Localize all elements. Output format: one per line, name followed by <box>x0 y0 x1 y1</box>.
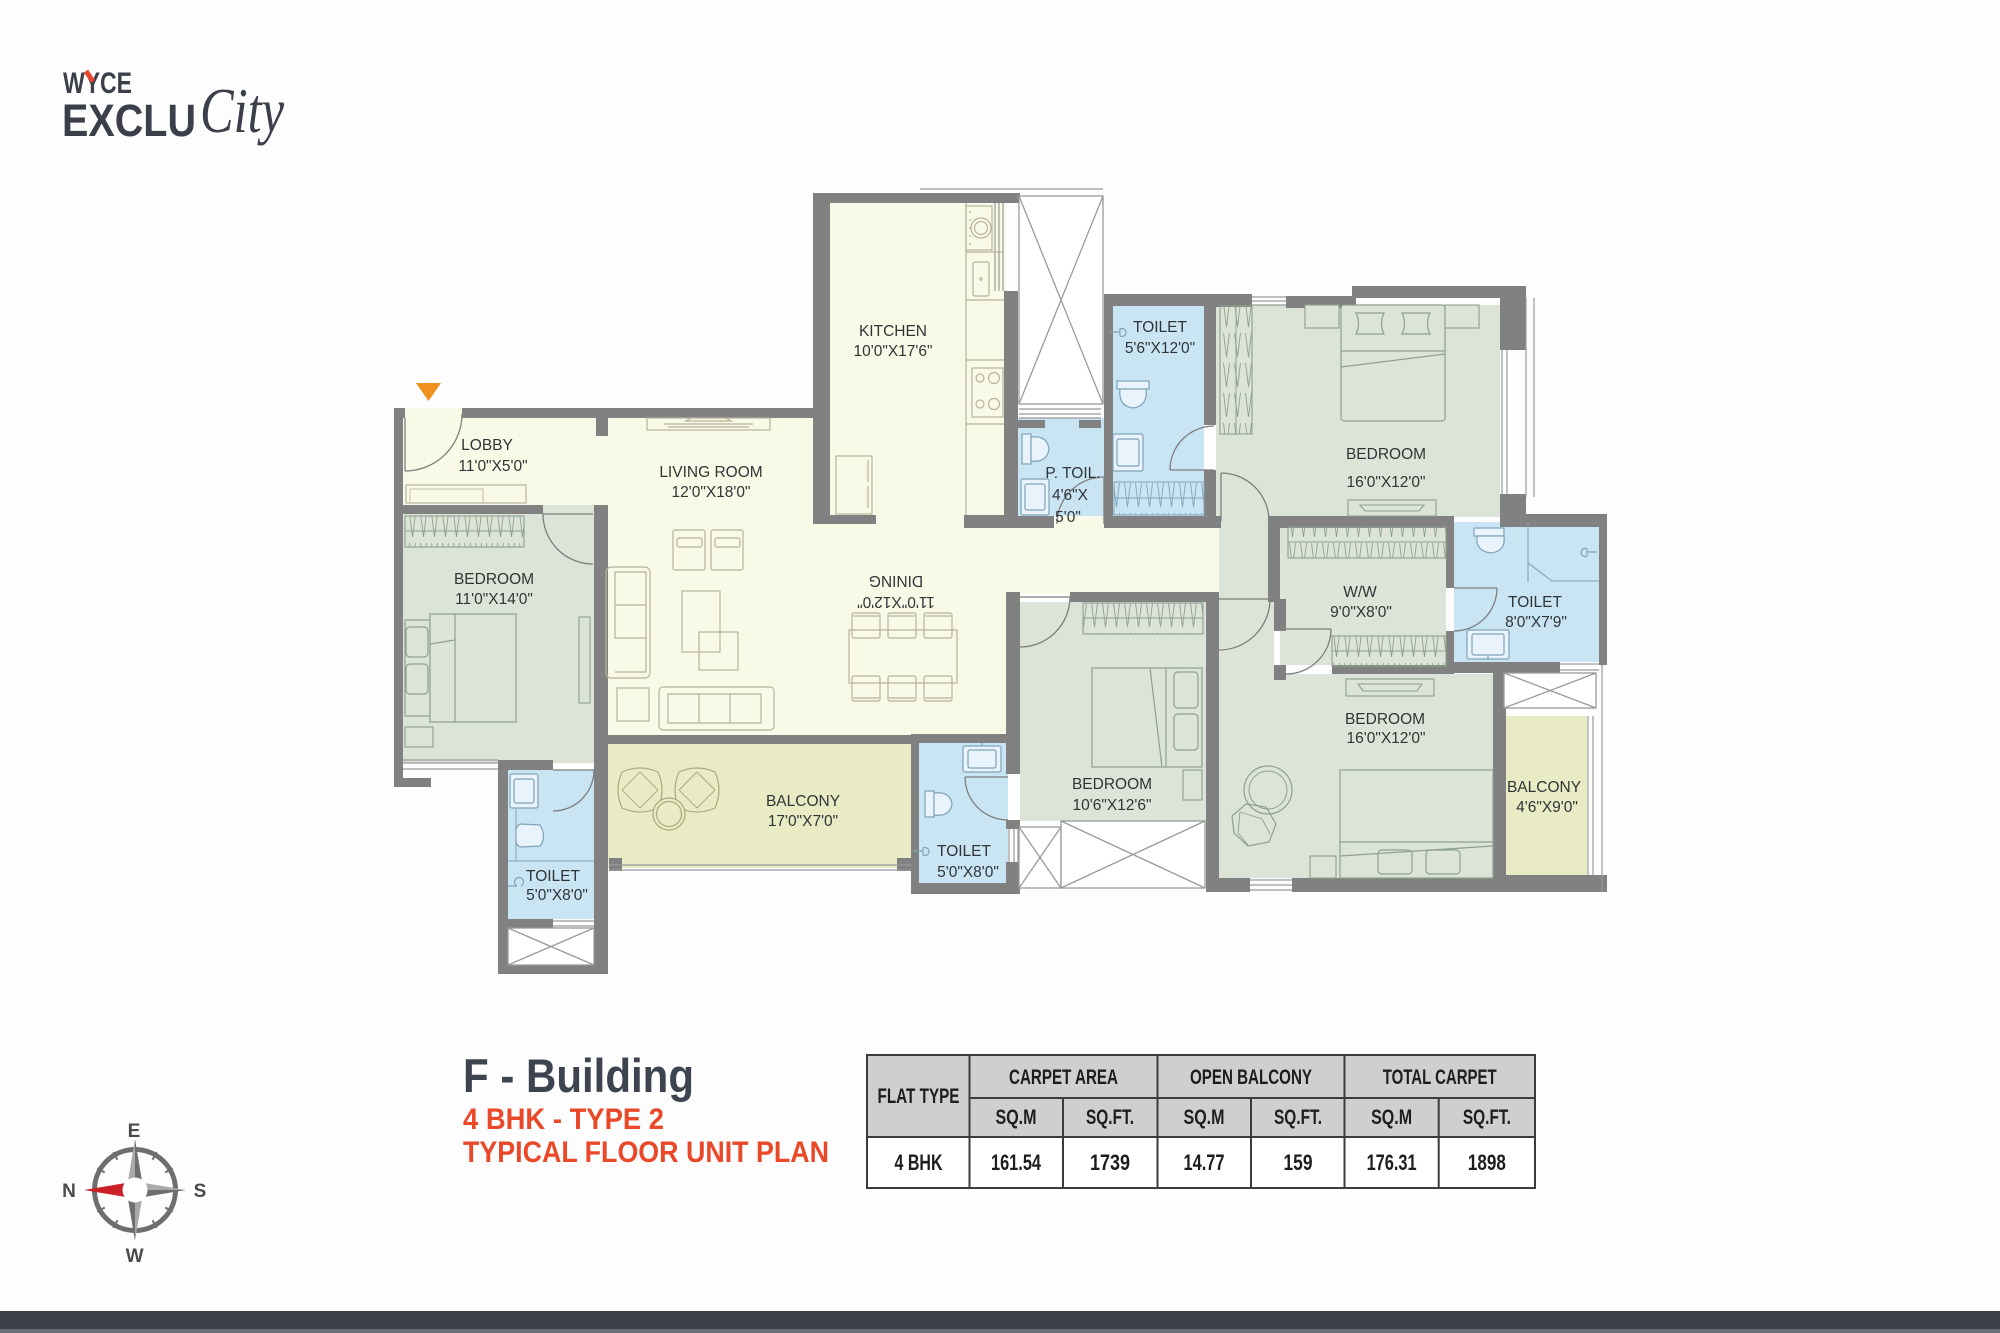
svg-text:9'0"X8'0": 9'0"X8'0" <box>1330 604 1392 621</box>
svg-text:TOTAL CARPET: TOTAL CARPET <box>1383 1066 1497 1089</box>
svg-text:P. TOIL.: P. TOIL. <box>1045 465 1100 482</box>
svg-text:S: S <box>194 1181 207 1202</box>
svg-text:TOILET: TOILET <box>1133 319 1188 336</box>
svg-text:16'0"X12'0": 16'0"X12'0" <box>1347 730 1426 747</box>
svg-text:F - Building: F - Building <box>463 1049 694 1102</box>
svg-text:EXCLU: EXCLU <box>62 95 196 146</box>
svg-text:OPEN BALCONY: OPEN BALCONY <box>1190 1066 1312 1089</box>
svg-text:FLAT TYPE: FLAT TYPE <box>878 1085 960 1108</box>
svg-text:10'6"X12'6": 10'6"X12'6" <box>1073 797 1152 814</box>
svg-text:E: E <box>128 1121 141 1142</box>
svg-text:SQ.M: SQ.M <box>996 1106 1037 1129</box>
svg-text:BEDROOM: BEDROOM <box>454 571 534 588</box>
svg-text:5'6"X12'0": 5'6"X12'0" <box>1125 340 1195 357</box>
svg-text:BALCONY: BALCONY <box>766 793 840 810</box>
svg-text:TOILET: TOILET <box>526 868 581 885</box>
svg-text:W: W <box>126 1246 144 1267</box>
svg-text:BEDROOM: BEDROOM <box>1345 711 1425 728</box>
svg-text:176.31: 176.31 <box>1367 1150 1417 1175</box>
svg-text:W/W: W/W <box>1343 584 1377 601</box>
svg-text:4'6"X: 4'6"X <box>1052 487 1089 504</box>
svg-text:TOILET: TOILET <box>937 843 992 860</box>
svg-text:TOILET: TOILET <box>1508 594 1563 611</box>
svg-text:LOBBY: LOBBY <box>461 437 513 454</box>
svg-text:4 BHK - TYPE 2: 4 BHK - TYPE 2 <box>463 1103 664 1136</box>
svg-text:SQ.FT.: SQ.FT. <box>1463 1106 1511 1129</box>
svg-text:SQ.M: SQ.M <box>1184 1106 1225 1129</box>
svg-text:11'0"X14'0": 11'0"X14'0" <box>455 591 533 608</box>
svg-text:5'0"X8'0": 5'0"X8'0" <box>526 887 588 904</box>
svg-text:DINING: DINING <box>869 572 923 589</box>
svg-text:SQ.M: SQ.M <box>1371 1106 1412 1129</box>
svg-text:BEDROOM: BEDROOM <box>1346 446 1426 463</box>
svg-text:11'0"X12'0": 11'0"X12'0" <box>857 593 935 610</box>
svg-text:14.77: 14.77 <box>1184 1150 1225 1175</box>
svg-text:5'0": 5'0" <box>1055 509 1081 526</box>
svg-text:17'0"X7'0": 17'0"X7'0" <box>768 813 838 830</box>
svg-text:8'0"X7'9": 8'0"X7'9" <box>1505 614 1567 631</box>
svg-text:KITCHEN: KITCHEN <box>859 323 927 340</box>
svg-text:1898: 1898 <box>1468 1150 1506 1175</box>
svg-text:16'0"X12'0": 16'0"X12'0" <box>1347 474 1426 491</box>
svg-text:161.54: 161.54 <box>991 1150 1042 1175</box>
svg-text:BALCONY: BALCONY <box>1507 779 1581 796</box>
svg-text:4'6"X9'0": 4'6"X9'0" <box>1516 799 1578 816</box>
svg-text:BEDROOM: BEDROOM <box>1072 776 1152 793</box>
svg-text:10'0"X17'6": 10'0"X17'6" <box>854 343 933 360</box>
svg-text:LIVING ROOM: LIVING ROOM <box>659 464 762 481</box>
svg-text:TYPICAL FLOOR UNIT PLAN: TYPICAL FLOOR UNIT PLAN <box>463 1136 829 1169</box>
svg-text:4 BHK: 4 BHK <box>895 1150 943 1175</box>
svg-text:SQ.FT.: SQ.FT. <box>1086 1106 1134 1129</box>
svg-text:12'0"X18'0": 12'0"X18'0" <box>672 484 751 501</box>
svg-text:159: 159 <box>1284 1150 1313 1175</box>
svg-text:City: City <box>200 75 284 146</box>
svg-text:SQ.FT.: SQ.FT. <box>1274 1106 1322 1129</box>
svg-text:N: N <box>62 1181 76 1202</box>
svg-text:1739: 1739 <box>1090 1150 1130 1175</box>
svg-text:CARPET AREA: CARPET AREA <box>1009 1066 1118 1089</box>
svg-text:11'0"X5'0": 11'0"X5'0" <box>458 458 527 475</box>
svg-text:5'0"X8'0": 5'0"X8'0" <box>937 864 999 881</box>
